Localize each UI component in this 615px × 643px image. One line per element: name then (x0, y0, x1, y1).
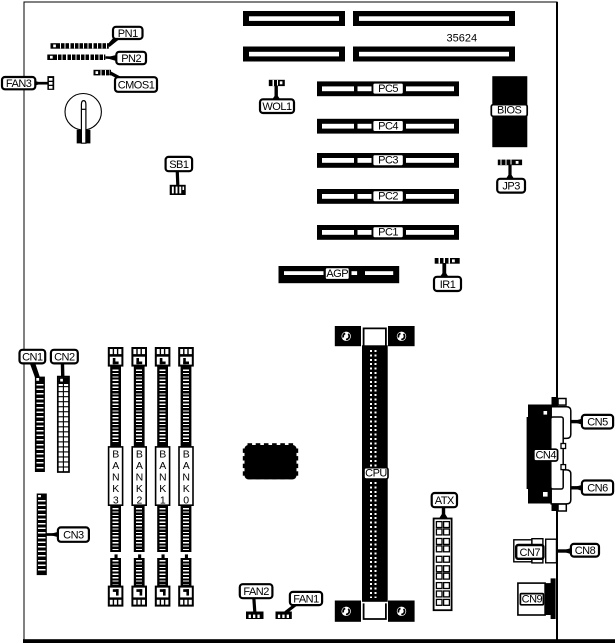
svg-text:K: K (136, 483, 143, 495)
svg-text:PC2: PC2 (378, 191, 398, 203)
svg-text:N: N (159, 471, 167, 483)
svg-text:B: B (183, 448, 190, 460)
svg-text:CN3: CN3 (63, 530, 84, 542)
svg-text:PN1: PN1 (118, 28, 138, 40)
svg-text:CN7: CN7 (520, 547, 541, 559)
svg-text:SB1: SB1 (169, 159, 189, 171)
svg-text:CN5: CN5 (587, 417, 608, 429)
svg-text:N: N (136, 471, 144, 483)
svg-text:CN4: CN4 (535, 449, 556, 461)
svg-text:CMOS1: CMOS1 (118, 79, 155, 91)
svg-text:K: K (112, 483, 119, 495)
svg-text:CN9: CN9 (522, 593, 543, 605)
svg-text:CN6: CN6 (587, 483, 608, 495)
svg-text:CN1: CN1 (22, 352, 43, 364)
svg-text:PN2: PN2 (121, 53, 141, 65)
svg-text:ATX: ATX (435, 495, 455, 507)
svg-text:B: B (159, 448, 166, 460)
svg-text:PC3: PC3 (378, 155, 398, 167)
svg-text:FAN3: FAN3 (6, 78, 32, 90)
svg-text:0: 0 (183, 495, 189, 507)
svg-text:JP3: JP3 (502, 181, 520, 193)
svg-text:PC4: PC4 (378, 121, 398, 133)
svg-text:1: 1 (160, 495, 166, 507)
svg-text:N: N (112, 471, 120, 483)
svg-text:BIOS: BIOS (497, 105, 521, 117)
svg-text:2: 2 (136, 495, 142, 507)
svg-text:N: N (182, 471, 190, 483)
svg-text:FAN2: FAN2 (243, 586, 269, 598)
svg-text:CN2: CN2 (54, 352, 75, 364)
svg-text:IR1: IR1 (440, 279, 456, 291)
svg-text:A: A (159, 460, 166, 472)
svg-text:A: A (183, 460, 190, 472)
svg-text:PC5: PC5 (378, 83, 398, 95)
svg-text:FAN1: FAN1 (293, 593, 319, 605)
svg-text:WOL1: WOL1 (262, 101, 292, 113)
svg-text:K: K (159, 483, 166, 495)
svg-text:B: B (136, 448, 143, 460)
svg-text:B: B (112, 448, 119, 460)
svg-text:35624: 35624 (447, 33, 478, 45)
svg-text:A: A (112, 460, 119, 472)
svg-text:PC1: PC1 (378, 227, 398, 239)
svg-text:AGP: AGP (326, 268, 348, 280)
svg-text:3: 3 (113, 495, 119, 507)
svg-text:K: K (183, 483, 190, 495)
svg-text:A: A (136, 460, 143, 472)
svg-text:CN8: CN8 (575, 545, 596, 557)
svg-text:CPU: CPU (365, 468, 387, 480)
